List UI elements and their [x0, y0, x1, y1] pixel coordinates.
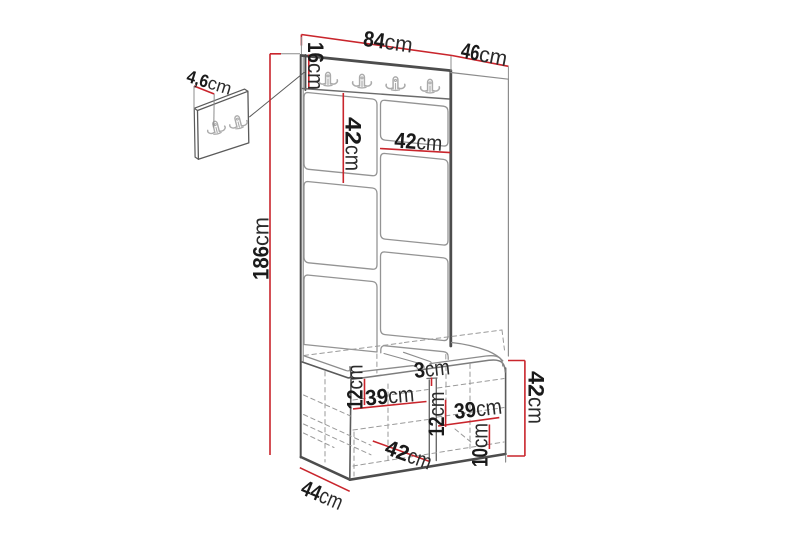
svg-text:39cm: 39cm [364, 381, 415, 410]
svg-text:12cm: 12cm [424, 392, 449, 437]
svg-text:42cm: 42cm [394, 128, 444, 156]
svg-text:42cm: 42cm [523, 371, 548, 424]
svg-text:3cm: 3cm [413, 354, 451, 383]
svg-text:16cm: 16cm [303, 42, 328, 90]
svg-text:186cm: 186cm [249, 217, 274, 280]
svg-text:10cm: 10cm [468, 423, 493, 467]
svg-text:42cm: 42cm [340, 117, 365, 171]
